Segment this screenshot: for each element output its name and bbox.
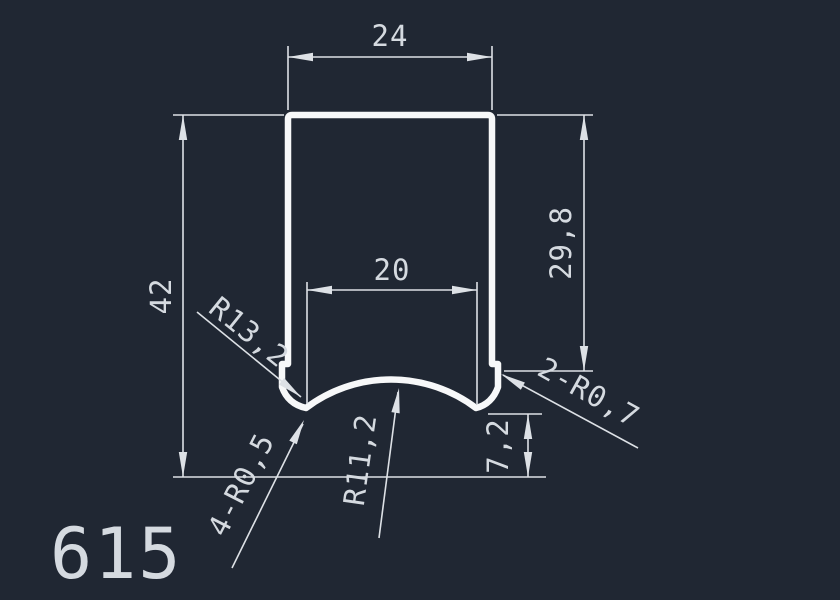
drawing-background (0, 0, 840, 600)
dim-label-overall-height: 42 (144, 278, 178, 315)
dim-label-notch-width: 20 (374, 253, 411, 287)
dim-label-side-height: 29,8 (544, 206, 578, 280)
dim-label-outer-width: 24 (372, 19, 409, 53)
cad-drawing: 24 42 20 29,8 7,2 R13,2 4-R0,5 R11,2 2-R… (0, 0, 840, 600)
cad-viewport: 24 42 20 29,8 7,2 R13,2 4-R0,5 R11,2 2-R… (0, 0, 840, 600)
dim-label-foot-height: 7,2 (481, 418, 515, 473)
part-number-label: 615 (50, 513, 182, 595)
